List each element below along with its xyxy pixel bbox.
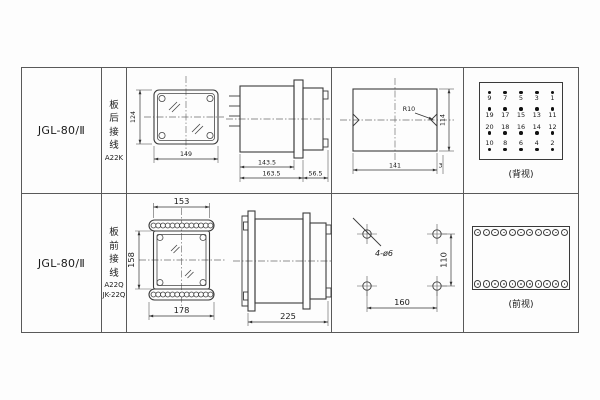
model-label: JGL-80/Ⅱ xyxy=(38,257,85,270)
terminal-row: 108642 xyxy=(483,140,559,151)
terminal-number: 9 xyxy=(487,95,491,102)
outline-cell-row1: 124 149 xyxy=(127,68,332,194)
front-view-drawing-rear-wiring: 124 149 xyxy=(128,70,226,192)
model-cell-row2: JGL-80/Ⅱ xyxy=(22,194,102,332)
terminal: 11 xyxy=(546,107,559,118)
front-terminal-row xyxy=(474,229,568,236)
model-label: JGL-80/Ⅱ xyxy=(38,124,85,137)
dim-height: 158 xyxy=(126,252,136,268)
terminal-circle xyxy=(561,229,568,236)
terminal: 2 xyxy=(546,140,559,151)
terminal-circle xyxy=(517,229,524,236)
front-view-caption: (前视) xyxy=(508,297,533,310)
terminal: 16 xyxy=(515,124,528,135)
front-panel-view xyxy=(472,226,570,290)
terminal-circle xyxy=(526,229,533,236)
wiring-cell-row1: 板 后 接 线 A22K xyxy=(102,68,127,194)
terminal-dot xyxy=(519,131,523,135)
wiring-char: 接 xyxy=(109,126,119,140)
dim-body-depth: 143.5 xyxy=(258,159,276,166)
terminal-circle xyxy=(491,229,498,236)
terminal-number: 12 xyxy=(548,124,556,131)
terminal: 14 xyxy=(530,124,543,135)
terminal-circle xyxy=(552,280,559,287)
terminal: 8 xyxy=(499,140,512,151)
terminal-circle xyxy=(500,229,507,236)
dim-edge-gap: 3 xyxy=(438,162,442,169)
front-view-drawing-front-wiring: 153 xyxy=(125,196,233,330)
dim-bottom-width: 178 xyxy=(174,305,190,315)
terminal-dot xyxy=(551,148,555,152)
terminal: 17 xyxy=(499,107,512,118)
terminal-number: 11 xyxy=(548,112,556,119)
terminal-number: 15 xyxy=(517,112,525,119)
model-cell-row1: JGL-80/Ⅱ xyxy=(22,68,102,194)
terminal-dot xyxy=(519,148,523,152)
terminal-number: 20 xyxy=(485,124,493,131)
terminal: 12 xyxy=(546,124,559,135)
terminal-circle xyxy=(474,280,481,287)
terminal-dot xyxy=(488,131,492,135)
terminal: 10 xyxy=(483,140,496,151)
drill-plan-cell: 4-ø6 110 160 xyxy=(332,194,464,332)
terminal-number: 13 xyxy=(533,112,541,119)
terminal: 18 xyxy=(499,124,512,135)
dim-hole-spacing-h: 160 xyxy=(394,297,410,307)
dim-corner-radius: R10 xyxy=(403,106,415,113)
terminal-circle xyxy=(543,229,550,236)
front-panel-cell: (前视) xyxy=(464,194,578,332)
dim-total-depth: 163.5 xyxy=(262,170,280,177)
dim-rear-depth: 56.5 xyxy=(308,170,322,177)
rear-terminal-grid: 9753119171513112018161412108642 xyxy=(479,82,563,160)
terminal-dot xyxy=(551,131,555,135)
terminal-number: 2 xyxy=(550,140,554,147)
terminal-number: 16 xyxy=(517,124,525,131)
terminal-number: 6 xyxy=(519,140,523,147)
dim-total-depth: 225 xyxy=(280,311,296,321)
terminal-dot xyxy=(535,148,539,152)
side-view-drawing-front-wiring: 225 xyxy=(233,196,333,330)
dim-cutout-height: 114 xyxy=(440,113,447,125)
terminal: 15 xyxy=(515,107,528,118)
terminal-dot xyxy=(503,148,507,152)
terminal-circle xyxy=(526,280,533,287)
dim-width: 149 xyxy=(180,151,192,158)
wiring-char: 接 xyxy=(109,253,119,267)
dim-hole-spacing-v: 110 xyxy=(439,252,449,268)
terminal-circle xyxy=(509,280,516,287)
terminal: 1 xyxy=(546,91,559,102)
wiring-char: 线 xyxy=(109,267,119,281)
wiring-code: JK-22Q xyxy=(103,291,126,300)
terminal-circle xyxy=(491,280,498,287)
cutout-cell-row1: R10 141 114 3 xyxy=(332,68,464,194)
dim-cutout-width: 141 xyxy=(389,162,401,169)
terminal: 9 xyxy=(483,91,496,102)
terminal-dot xyxy=(488,148,492,152)
panel-cutout-drawing: R10 141 114 3 xyxy=(335,75,460,187)
hole-spec-label: 4-ø6 xyxy=(375,249,393,258)
terminal: 3 xyxy=(530,91,543,102)
drill-plan-drawing: 4-ø6 110 160 xyxy=(335,204,460,322)
terminal-circle xyxy=(517,280,524,287)
terminal: 19 xyxy=(483,107,496,118)
terminal: 13 xyxy=(530,107,543,118)
wiring-char: 板 xyxy=(109,99,119,113)
dim-top-width: 153 xyxy=(174,196,190,206)
wiring-char: 线 xyxy=(109,139,119,153)
terminal-dot xyxy=(535,131,539,135)
terminal-circle xyxy=(474,229,481,236)
wiring-code: A22Q xyxy=(104,281,123,290)
terminal-number: 5 xyxy=(519,95,523,102)
terminal: 5 xyxy=(515,91,528,102)
terminal-row: 2018161412 xyxy=(483,124,559,135)
wiring-char: 板 xyxy=(109,226,119,240)
terminal-number: 19 xyxy=(485,112,493,119)
terminal-circle xyxy=(535,280,542,287)
rear-view-caption: (背视) xyxy=(508,167,533,180)
wiring-code: A22K xyxy=(105,154,123,163)
terminal: 4 xyxy=(530,140,543,151)
terminal-number: 7 xyxy=(503,95,507,102)
terminal-number: 10 xyxy=(485,140,493,147)
spec-table: JGL-80/Ⅱ 板 后 接 线 A22K 124 149 xyxy=(21,67,579,333)
terminal-number: 17 xyxy=(501,112,509,119)
terminal-circle xyxy=(509,229,516,236)
terminal: 7 xyxy=(499,91,512,102)
terminal-circle xyxy=(543,280,550,287)
terminal-number: 4 xyxy=(535,140,539,147)
terminal-circle xyxy=(483,280,490,287)
terminal-number: 14 xyxy=(533,124,541,131)
wiring-char: 后 xyxy=(109,112,119,126)
terminal-number: 1 xyxy=(550,95,554,102)
mounting-hole xyxy=(357,224,377,244)
outline-cell-row2: 153 xyxy=(127,194,332,332)
wiring-cell-row2: 板 前 接 线 A22Q JK-22Q xyxy=(102,194,127,332)
dim-height: 124 xyxy=(130,110,137,122)
terminal-dot xyxy=(503,131,507,135)
terminal-number: 3 xyxy=(535,95,539,102)
rear-view-cell: 9753119171513112018161412108642 (背视) xyxy=(464,68,578,194)
front-terminal-row xyxy=(474,280,568,287)
terminal-circle xyxy=(535,229,542,236)
terminal-row: 1917151311 xyxy=(483,107,559,118)
terminal-circle xyxy=(483,229,490,236)
terminal-circle xyxy=(552,229,559,236)
dimension-sheet: JGL-80/Ⅱ 板 后 接 线 A22K 124 149 xyxy=(0,0,600,400)
terminal: 20 xyxy=(483,124,496,135)
terminal: 6 xyxy=(515,140,528,151)
terminal-number: 8 xyxy=(503,140,507,147)
wiring-char: 前 xyxy=(109,240,119,254)
terminal-row: 97531 xyxy=(483,91,559,102)
terminal-circle xyxy=(561,280,568,287)
side-view-drawing-rear-wiring: 143.5 163.5 56.5 xyxy=(226,70,330,192)
terminal-number: 18 xyxy=(501,124,509,131)
terminal-circle xyxy=(500,280,507,287)
